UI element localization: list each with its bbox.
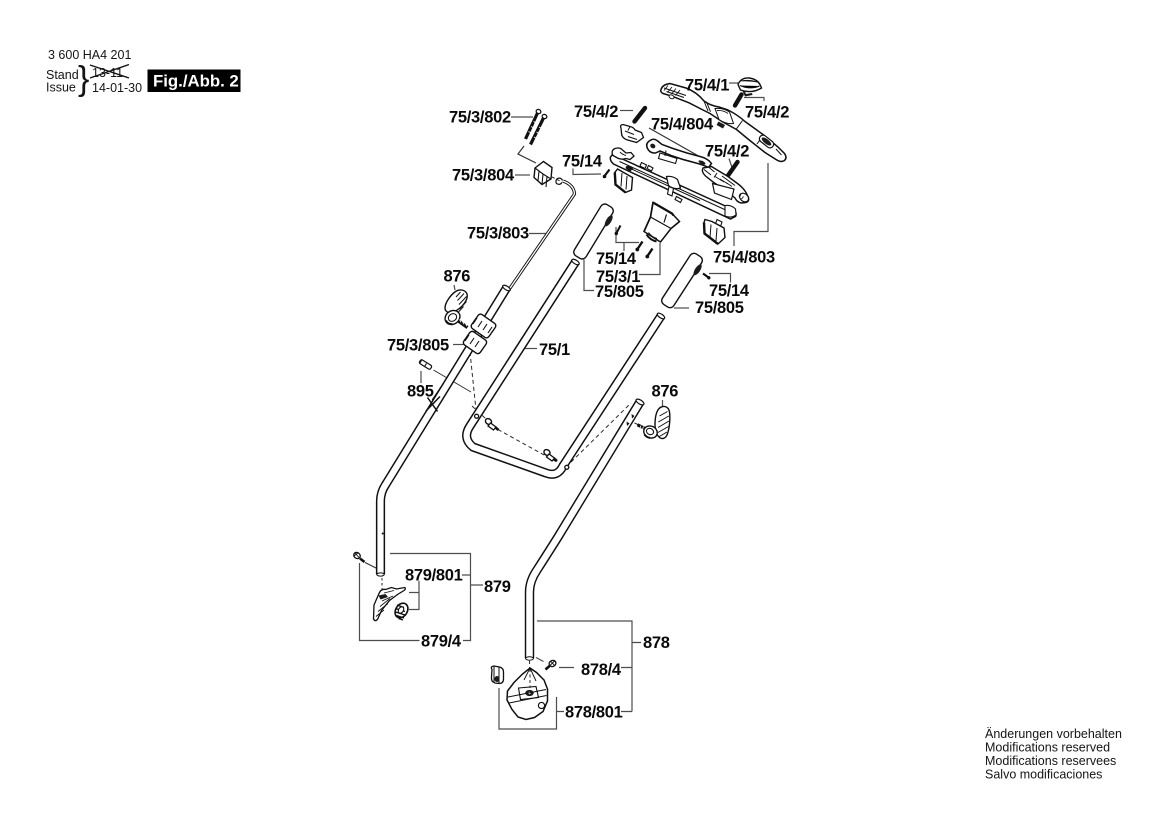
svg-text:75/4/2: 75/4/2	[745, 104, 789, 122]
svg-text:75/1: 75/1	[539, 341, 570, 359]
svg-text:Salvo modificaciones: Salvo modificaciones	[985, 768, 1102, 782]
svg-text:879: 879	[484, 578, 511, 596]
svg-text:878/4: 878/4	[581, 661, 622, 679]
svg-text:3 600 HA4 201: 3 600 HA4 201	[48, 48, 131, 62]
svg-text:75/14: 75/14	[709, 282, 750, 300]
svg-text:879/801: 879/801	[405, 567, 463, 585]
svg-text:}: }	[78, 60, 89, 98]
svg-text:879/4: 879/4	[421, 633, 462, 651]
svg-text:75/4/2: 75/4/2	[574, 103, 618, 121]
svg-text:878/801: 878/801	[565, 704, 623, 722]
svg-text:Modifications reserved: Modifications reserved	[985, 741, 1110, 755]
svg-text:75/3/805: 75/3/805	[387, 337, 449, 355]
svg-text:Fig./Abb. 2: Fig./Abb. 2	[153, 72, 239, 91]
svg-text:75/4/803: 75/4/803	[713, 249, 775, 267]
svg-text:876: 876	[652, 383, 679, 401]
svg-text:Modifications reservees: Modifications reservees	[985, 754, 1116, 768]
svg-text:75/4/804: 75/4/804	[651, 116, 714, 134]
svg-text:75/4/2: 75/4/2	[705, 143, 749, 161]
svg-text:75/14: 75/14	[562, 153, 603, 171]
svg-text:14-01-30: 14-01-30	[92, 81, 142, 95]
svg-text:Änderungen vorbehalten: Änderungen vorbehalten	[985, 727, 1122, 741]
svg-text:75/805: 75/805	[695, 299, 744, 317]
svg-text:75/4/1: 75/4/1	[685, 77, 729, 95]
svg-text:Issue: Issue	[46, 81, 76, 95]
svg-text:75/14: 75/14	[596, 250, 637, 268]
svg-text:75/3/803: 75/3/803	[467, 225, 529, 243]
svg-text:75/805: 75/805	[595, 283, 644, 301]
svg-text:75/3/804: 75/3/804	[452, 167, 515, 185]
svg-text:895: 895	[407, 383, 434, 401]
svg-text:876: 876	[444, 268, 471, 286]
svg-text:878: 878	[643, 634, 670, 652]
svg-text:75/3/802: 75/3/802	[449, 109, 511, 127]
